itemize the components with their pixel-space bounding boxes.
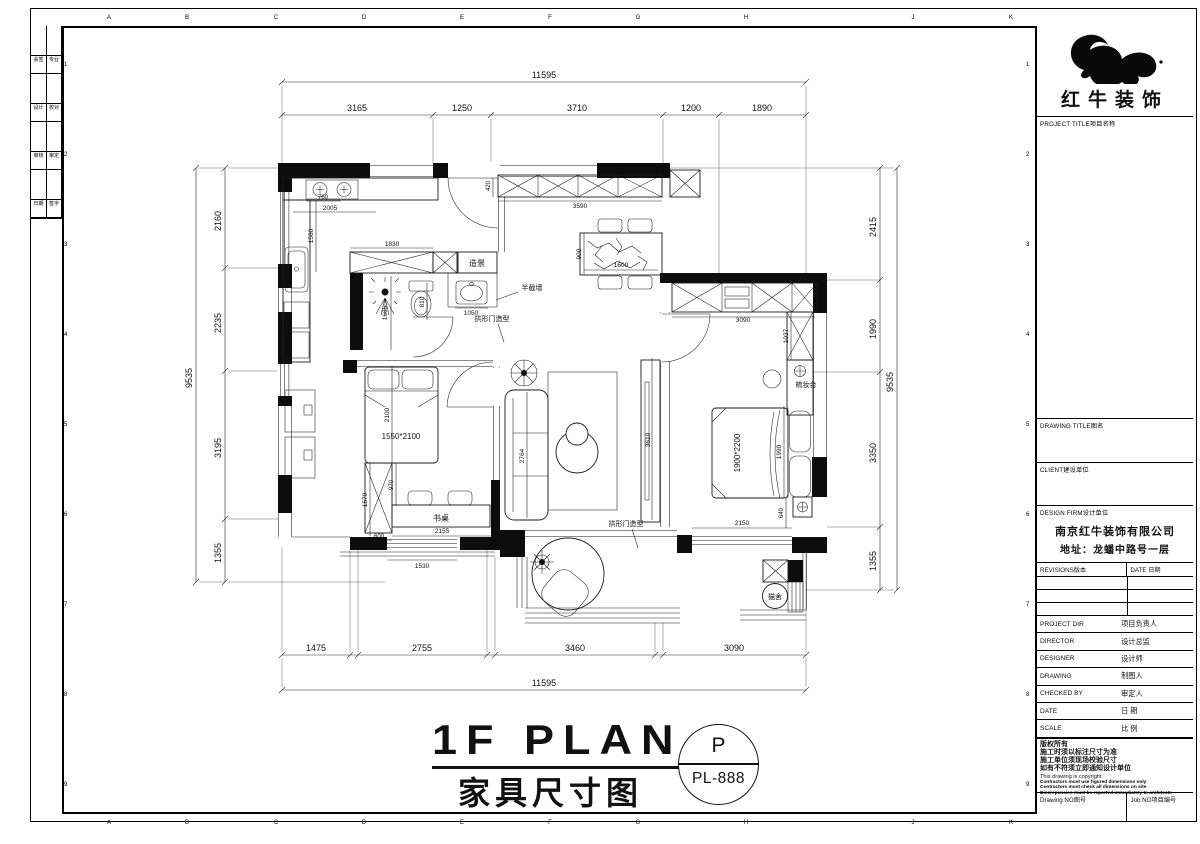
drawing-sheet: A B C D E F G H J K A B C D E F G H J K …	[0, 0, 1200, 844]
approval-empty-row	[31, 122, 61, 152]
grid-number: 5	[1026, 422, 1029, 428]
master-bedroom	[672, 283, 817, 609]
grid-number: 5	[64, 422, 67, 428]
grid-letter: F	[544, 820, 556, 826]
grid-number: 4	[1026, 332, 1029, 338]
drawing-number-row: Drawing NO图号 Job NO项目编号	[1037, 793, 1193, 822]
grid-letter: D	[358, 15, 370, 21]
svg-text:3590: 3590	[573, 203, 588, 210]
grid-number: 7	[64, 602, 67, 608]
firm-name: 南京红牛装饰有限公司	[1037, 523, 1193, 539]
plan-number-stamp: P PL-888	[678, 724, 759, 805]
svg-text:3165: 3165	[347, 103, 367, 113]
grid-number: 3	[1026, 242, 1029, 248]
titleblock-row-director: DIRECTOR 设计总监	[1037, 633, 1193, 650]
grid-letter: G	[632, 15, 644, 21]
approval-empty-row	[31, 170, 61, 200]
floor-plan-svg: 11595 3165 1250 3710 1200 1890 1475 2755…	[180, 50, 940, 710]
grid-letter: K	[1005, 820, 1017, 826]
door-swings	[413, 178, 710, 407]
svg-text:3460: 3460	[565, 643, 585, 653]
svg-text:3195: 3195	[213, 438, 223, 458]
grid-number: 9	[64, 782, 67, 788]
revision-empty-row	[1037, 577, 1193, 590]
appliance	[285, 437, 315, 478]
svg-text:420: 420	[486, 180, 492, 191]
svg-text:半截墙: 半截墙	[522, 283, 543, 292]
svg-text:2235: 2235	[213, 313, 223, 333]
stamp-divider	[679, 763, 758, 765]
grid-number: 2	[64, 152, 67, 158]
dining-set	[580, 219, 662, 289]
grid-number: 8	[64, 692, 67, 698]
grid-number: 6	[64, 512, 67, 518]
svg-text:3710: 3710	[567, 103, 587, 113]
svg-text:810: 810	[419, 296, 426, 307]
grid-letter: J	[907, 820, 919, 826]
svg-text:1900*2200: 1900*2200	[733, 433, 742, 472]
grid-letter: E	[456, 820, 468, 826]
stove	[306, 180, 358, 199]
firm-address: 地址：龙蟠中路号一层	[1037, 541, 1193, 556]
grid-number: 8	[1026, 692, 1029, 698]
titleblock-row-checked: CHECKED BY 审定人	[1037, 686, 1193, 703]
svg-text:11595: 11595	[532, 678, 556, 688]
svg-text:2100: 2100	[384, 407, 391, 422]
titleblock-row-drawing: DRAWING 制图人	[1037, 668, 1193, 685]
svg-text:2415: 2415	[868, 217, 878, 237]
approval-empty-row	[31, 26, 61, 56]
svg-text:2155: 2155	[435, 528, 450, 535]
svg-text:1530: 1530	[415, 563, 430, 570]
grid-number: 1	[1026, 62, 1029, 68]
titleblock-row-date: DATE 日 期	[1037, 703, 1193, 720]
logo-area: 红牛装饰	[1037, 26, 1193, 117]
bed-small	[365, 367, 438, 463]
grid-letter: G	[632, 820, 644, 826]
grid-letter: A	[103, 15, 115, 21]
bedroom2	[365, 367, 490, 533]
drawing-title-cn: 家具尺寸图	[458, 768, 643, 814]
svg-text:猫舍: 猫舍	[768, 592, 782, 601]
grid-letter: F	[544, 15, 556, 21]
living-room	[505, 360, 660, 522]
approval-strip: 会签 专业 设计 校对 审核 审定 日期 签字	[30, 26, 62, 219]
revision-empty-row	[1037, 603, 1193, 616]
titleblock-row-designer: DESIGNER 设计师	[1037, 651, 1193, 668]
svg-text:11595: 11595	[532, 70, 556, 80]
grid-number: 3	[64, 242, 67, 248]
svg-text:1355: 1355	[868, 551, 878, 571]
svg-text:1570: 1570	[362, 492, 369, 507]
svg-text:3350: 3350	[868, 443, 878, 463]
svg-text:3610: 3610	[645, 432, 652, 447]
grid-number: 7	[1026, 602, 1029, 608]
svg-text:3090: 3090	[736, 317, 751, 324]
approval-row: 日期 签字	[31, 200, 61, 218]
grid-letter: A	[103, 820, 115, 826]
svg-text:1990: 1990	[776, 444, 783, 459]
balcony	[530, 538, 604, 621]
grid-letter: C	[270, 15, 282, 21]
grid-number: 4	[64, 332, 67, 338]
svg-text:2160: 2160	[213, 211, 223, 231]
svg-text:900: 900	[576, 248, 583, 259]
svg-text:拱形门造型: 拱形门造型	[475, 314, 510, 323]
grid-number: 9	[1026, 782, 1029, 788]
titleblock-row-scale: SCALE 比 例	[1037, 720, 1193, 737]
svg-text:1200: 1200	[681, 103, 701, 113]
shower-head	[382, 289, 389, 296]
svg-text:1990: 1990	[868, 319, 878, 339]
svg-text:2764: 2764	[519, 448, 526, 463]
wall-lines	[277, 161, 827, 623]
stool	[763, 370, 781, 388]
svg-text:造景: 造景	[469, 258, 485, 268]
copyright-block: 版权所有 施工时须以标注尺寸为准 施工单位须现场校验尺寸 如有不符须立即通知设计…	[1037, 738, 1193, 793]
plan-labels: 造景 半截墙 拱形门造型 拱形门造型 书桌 梳妆台 猫舍 1550*2100 1…	[382, 258, 817, 601]
svg-text:1560: 1560	[308, 228, 315, 243]
stamp-letter: P	[679, 734, 758, 758]
svg-text:3090: 3090	[724, 643, 744, 653]
grid-letter: H	[740, 15, 752, 21]
svg-text:梳妆台: 梳妆台	[796, 380, 817, 389]
toilet	[409, 281, 433, 291]
bull-logo-icon	[1040, 26, 1190, 84]
svg-text:1830: 1830	[385, 241, 400, 248]
approval-row: 设计 校对	[31, 104, 61, 122]
svg-text:1250: 1250	[452, 103, 472, 113]
grid-letter: J	[907, 15, 919, 21]
svg-text:1355: 1355	[213, 543, 223, 563]
client-cell: CLIENT建设单位	[1037, 463, 1193, 506]
svg-text:1665: 1665	[382, 305, 389, 320]
revisions-table: REVISIONS版本 DATE 日期	[1037, 563, 1193, 616]
svg-text:拱形门造型: 拱形门造型	[609, 519, 644, 528]
grid-letter: B	[181, 820, 193, 826]
svg-text:1037: 1037	[783, 328, 790, 343]
grid-number: 2	[1026, 152, 1029, 158]
logo-text: 红牛装饰	[1037, 85, 1193, 112]
svg-text:640: 640	[779, 507, 785, 518]
approval-empty-row	[31, 74, 61, 104]
grid-letter: K	[1005, 15, 1017, 21]
grid-letter: D	[358, 820, 370, 826]
titleblock-row-project-dir: PROJECT DIR 项目负责人	[1037, 616, 1193, 633]
drawing-title-en: 1F PLAN	[432, 716, 683, 764]
svg-text:2150: 2150	[735, 520, 750, 527]
grid-letter: B	[181, 15, 193, 21]
grid-letter: C	[270, 820, 282, 826]
grid-letter: E	[456, 15, 468, 21]
svg-text:9535: 9535	[184, 368, 194, 388]
grid-letter: H	[740, 820, 752, 826]
revision-empty-row	[1037, 590, 1193, 603]
grid-number: 6	[1026, 512, 1029, 518]
svg-text:2005: 2005	[323, 205, 338, 212]
sofa	[505, 390, 548, 520]
svg-text:2755: 2755	[412, 643, 432, 653]
svg-text:1890: 1890	[752, 103, 772, 113]
svg-text:9535: 9535	[885, 372, 895, 392]
approval-row: 审核 审定	[31, 152, 61, 170]
wardrobe-row	[672, 283, 817, 312]
title-block: 红牛装饰 PROJECT TITLE项目名称 DRAWING TITLE图名 C…	[1035, 26, 1193, 814]
drawing-title-cell: DRAWING TITLE图名	[1037, 419, 1193, 463]
grid-number: 1	[64, 62, 67, 68]
svg-text:1475: 1475	[306, 643, 326, 653]
svg-text:1550*2100: 1550*2100	[382, 432, 421, 441]
design-firm-cell: DESIGN FIRM设计单位 南京红牛装饰有限公司 地址：龙蟠中路号一层	[1037, 506, 1193, 563]
svg-text:书桌: 书桌	[433, 513, 449, 523]
project-title-cell: PROJECT TITLE项目名称	[1037, 117, 1193, 419]
approval-row: 会签 专业	[31, 56, 61, 74]
stamp-number: PL-888	[679, 770, 758, 788]
